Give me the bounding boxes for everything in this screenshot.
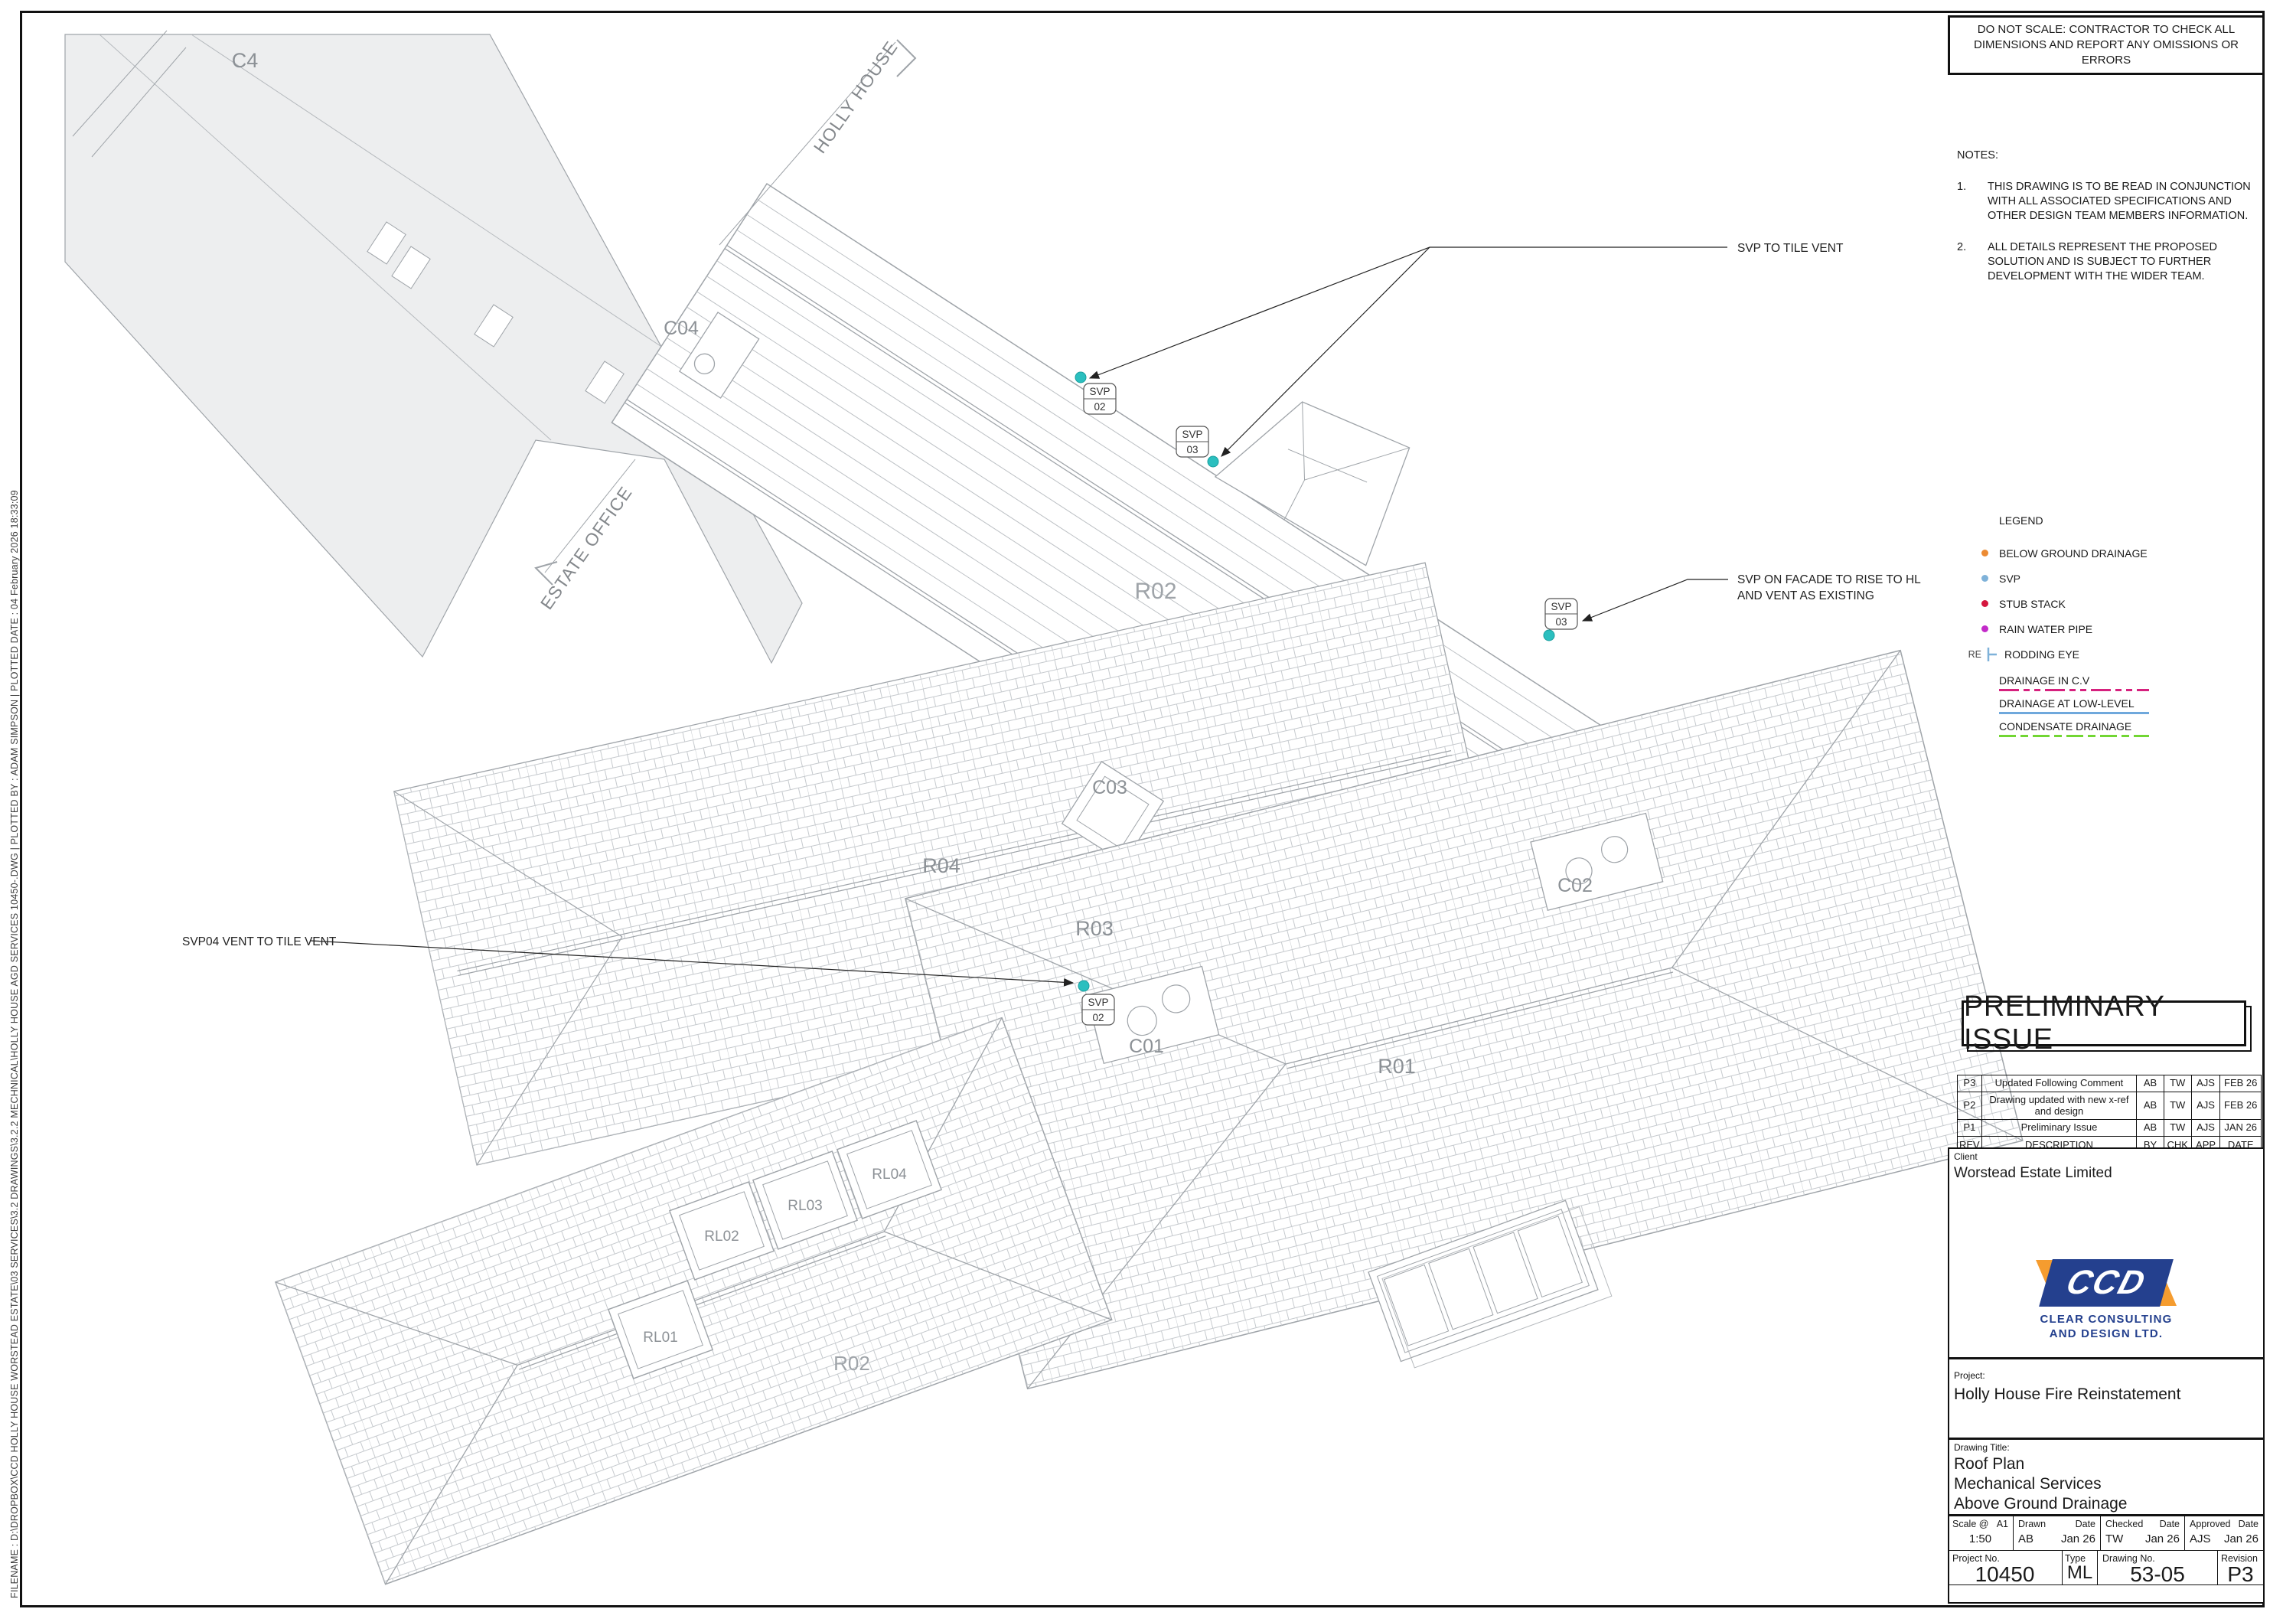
drawing-title-line-2: Mechanical Services <box>1954 1474 2102 1494</box>
legend-item-svp: SVP <box>1959 566 2250 591</box>
project-name: Holly House Fire Reinstatement <box>1954 1385 2180 1404</box>
label-rl02: RL02 <box>704 1229 739 1245</box>
do-not-scale-text: DO NOT SCALE: CONTRACTOR TO CHECK ALL DI… <box>1961 22 2252 69</box>
label-c04: C04 <box>664 318 699 339</box>
label-c01: C01 <box>1129 1036 1164 1057</box>
approved-value: AJS <box>2190 1532 2211 1545</box>
svg-text:SVP: SVP <box>1088 997 1108 1008</box>
svp-tag-1: SVP 02 <box>1084 383 1116 414</box>
drawing-title-line-1: Roof Plan <box>1954 1454 2024 1474</box>
project-no-cell: Project No. 10450 <box>1948 1551 2063 1584</box>
client-name: Worstead Estate Limited <box>1954 1165 2112 1182</box>
svp-tag-4: SVP 02 <box>1082 994 1114 1025</box>
project-label: Project: <box>1954 1370 1985 1381</box>
revision-row-p3: P3 Updated Following Comment AB TW AJS F… <box>1958 1075 2262 1092</box>
drawing-sheet: FILENAME : D:\DROPBOX\CCD HOLLY HOUSE WO… <box>0 0 2296 1622</box>
svg-text:03: 03 <box>1555 616 1567 628</box>
checked-value: TW <box>2105 1532 2123 1545</box>
legend-line-drainage-cv: DRAINAGE IN C.V <box>1999 674 2250 691</box>
divider <box>1948 1584 2265 1585</box>
label-r02-wing: R02 <box>833 1352 870 1375</box>
svg-text:SVP: SVP <box>1089 386 1110 397</box>
label-c03: C03 <box>1092 777 1127 798</box>
annotation-svp-facade-2: AND VENT AS EXISTING <box>1737 589 1874 602</box>
revision-row-p1: P1 Preliminary Issue AB TW AJS JAN 26 <box>1958 1120 2262 1137</box>
notes-title: NOTES: <box>1957 148 2260 163</box>
revision-cell: Revision P3 <box>2218 1551 2263 1584</box>
label-rl04: RL04 <box>872 1167 907 1183</box>
label-r01: R01 <box>1378 1055 1416 1078</box>
orange-dot-icon <box>1981 550 1988 556</box>
revision-table: P3 Updated Following Comment AB TW AJS F… <box>1957 1075 2262 1155</box>
legend-item-below-ground-drainage: BELOW GROUND DRAINAGE <box>1959 540 2250 566</box>
checked-date: Jan 26 <box>2145 1532 2180 1545</box>
legend-item-rodding-eye: RE RODDING EYE <box>1959 641 2250 667</box>
legend-line-drainage-low-level: DRAINAGE AT LOW-LEVEL <box>1999 697 2250 714</box>
drawn-date: Jan 26 <box>2061 1532 2095 1545</box>
approved-cell: ApprovedDate AJSJan 26 <box>2185 1516 2263 1550</box>
svp-tag-2: SVP 03 <box>1176 426 1208 457</box>
ccd-logo-mark: CCD <box>2030 1259 2183 1307</box>
checked-cell: CheckedDate TWJan 26 <box>2101 1516 2185 1550</box>
scale-value: 1:50 <box>1969 1532 1991 1545</box>
annotation-svp04-vent: SVP04 VENT TO TILE VENT <box>182 935 337 948</box>
label-r04: R04 <box>922 854 960 877</box>
svg-text:SVP: SVP <box>1551 601 1571 612</box>
magenta-dashed-line-icon <box>1999 689 2149 691</box>
svp-dot <box>1078 981 1089 991</box>
legend-title: LEGEND <box>1999 514 2250 527</box>
annotation-svp-tile-vent: SVP TO TILE VENT <box>1737 242 1844 255</box>
notes-section: NOTES: 1. THIS DRAWING IS TO BE READ IN … <box>1957 148 2260 301</box>
svp-dot <box>1208 456 1218 467</box>
note-item: 2. ALL DETAILS REPRESENT THE PROPOSED SO… <box>1957 240 2260 284</box>
logo-subtitle: CLEAR CONSULTING AND DESIGN LTD. <box>2040 1312 2172 1341</box>
blue-dot-icon <box>1981 575 1988 582</box>
note-number: 2. <box>1957 240 1988 284</box>
note-text: THIS DRAWING IS TO BE READ IN CONJUNCTIO… <box>1988 180 2260 224</box>
note-item: 1. THIS DRAWING IS TO BE READ IN CONJUNC… <box>1957 180 2260 224</box>
preliminary-stamp-text: PRELIMINARY ISSUE <box>1964 990 2244 1056</box>
ccd-logo: CCD CLEAR CONSULTING AND DESIGN LTD. <box>1948 1259 2265 1341</box>
rodding-eye-prefix: RE <box>1959 649 1981 660</box>
type-value: ML <box>2065 1562 2095 1584</box>
preliminary-stamp: PRELIMINARY ISSUE <box>1962 1000 2246 1046</box>
client-label: Client <box>1954 1151 1978 1162</box>
approved-date: Jan 26 <box>2224 1532 2258 1545</box>
label-c4: C4 <box>232 49 259 72</box>
drawing-no-value: 53-05 <box>2102 1562 2213 1587</box>
estate-office-leader: ESTATE OFFICE <box>536 459 636 613</box>
legend: LEGEND BELOW GROUND DRAINAGE SVP STUB ST… <box>1959 514 2250 743</box>
drawing-title-label: Drawing Title: <box>1954 1442 2010 1453</box>
drawing-no-cell: Drawing No. 53-05 <box>2098 1551 2218 1584</box>
rodding-eye-icon <box>1983 646 1998 663</box>
svg-text:02: 02 <box>1094 401 1105 413</box>
legend-line-condensate: CONDENSATE DRAINAGE <box>1999 720 2250 737</box>
label-r02-main: R02 <box>1134 579 1176 604</box>
divider <box>1948 1438 2265 1440</box>
label-r03: R03 <box>1075 917 1114 940</box>
svg-text:SVP: SVP <box>1182 429 1202 440</box>
legend-item-stub-stack: STUB STACK <box>1959 591 2250 616</box>
label-rl01: RL01 <box>643 1330 677 1346</box>
green-dashed-line-icon <box>1999 735 2149 737</box>
holly-house-label: HOLLY HOUSE <box>810 38 902 157</box>
note-text: ALL DETAILS REPRESENT THE PROPOSED SOLUT… <box>1988 240 2260 284</box>
annotation-svp-facade-1: SVP ON FACADE TO RISE TO HL <box>1737 573 1921 586</box>
revision-value: P3 <box>2221 1562 2260 1587</box>
note-number: 1. <box>1957 180 1988 224</box>
drawing-title-line-3: Above Ground Drainage <box>1954 1494 2127 1514</box>
svp-dot <box>1544 630 1554 641</box>
type-cell: Type ML <box>2063 1551 2098 1584</box>
project-no-value: 10450 <box>1952 1562 2057 1587</box>
revision-row-p2: P2 Drawing updated with new x-ref and de… <box>1958 1092 2262 1120</box>
svg-text:03: 03 <box>1186 444 1198 455</box>
logo-blue-parallelogram-icon: CCD <box>2039 1259 2174 1307</box>
do-not-scale-box: DO NOT SCALE: CONTRACTOR TO CHECK ALL DI… <box>1948 15 2265 75</box>
svp-dot <box>1075 372 1086 383</box>
drawn-value: AB <box>2018 1532 2033 1545</box>
blue-solid-line-icon <box>1999 712 2149 714</box>
svp-tag-3: SVP 03 <box>1545 599 1577 629</box>
svg-text:02: 02 <box>1092 1012 1104 1023</box>
divider <box>1948 1357 2265 1359</box>
label-c02: C02 <box>1557 875 1593 896</box>
drawn-cell: DrawnDate ABJan 26 <box>2014 1516 2101 1550</box>
estate-office-label: ESTATE OFFICE <box>536 482 636 612</box>
label-rl03: RL03 <box>788 1198 822 1214</box>
red-dot-icon <box>1981 600 1988 607</box>
legend-item-rain-water-pipe: RAIN WATER PIPE <box>1959 616 2250 641</box>
logo-abbr: CCD <box>2062 1264 2151 1302</box>
magenta-dot-icon <box>1981 625 1988 632</box>
scale-cell: Scale @A1 1:50 <box>1948 1516 2014 1550</box>
